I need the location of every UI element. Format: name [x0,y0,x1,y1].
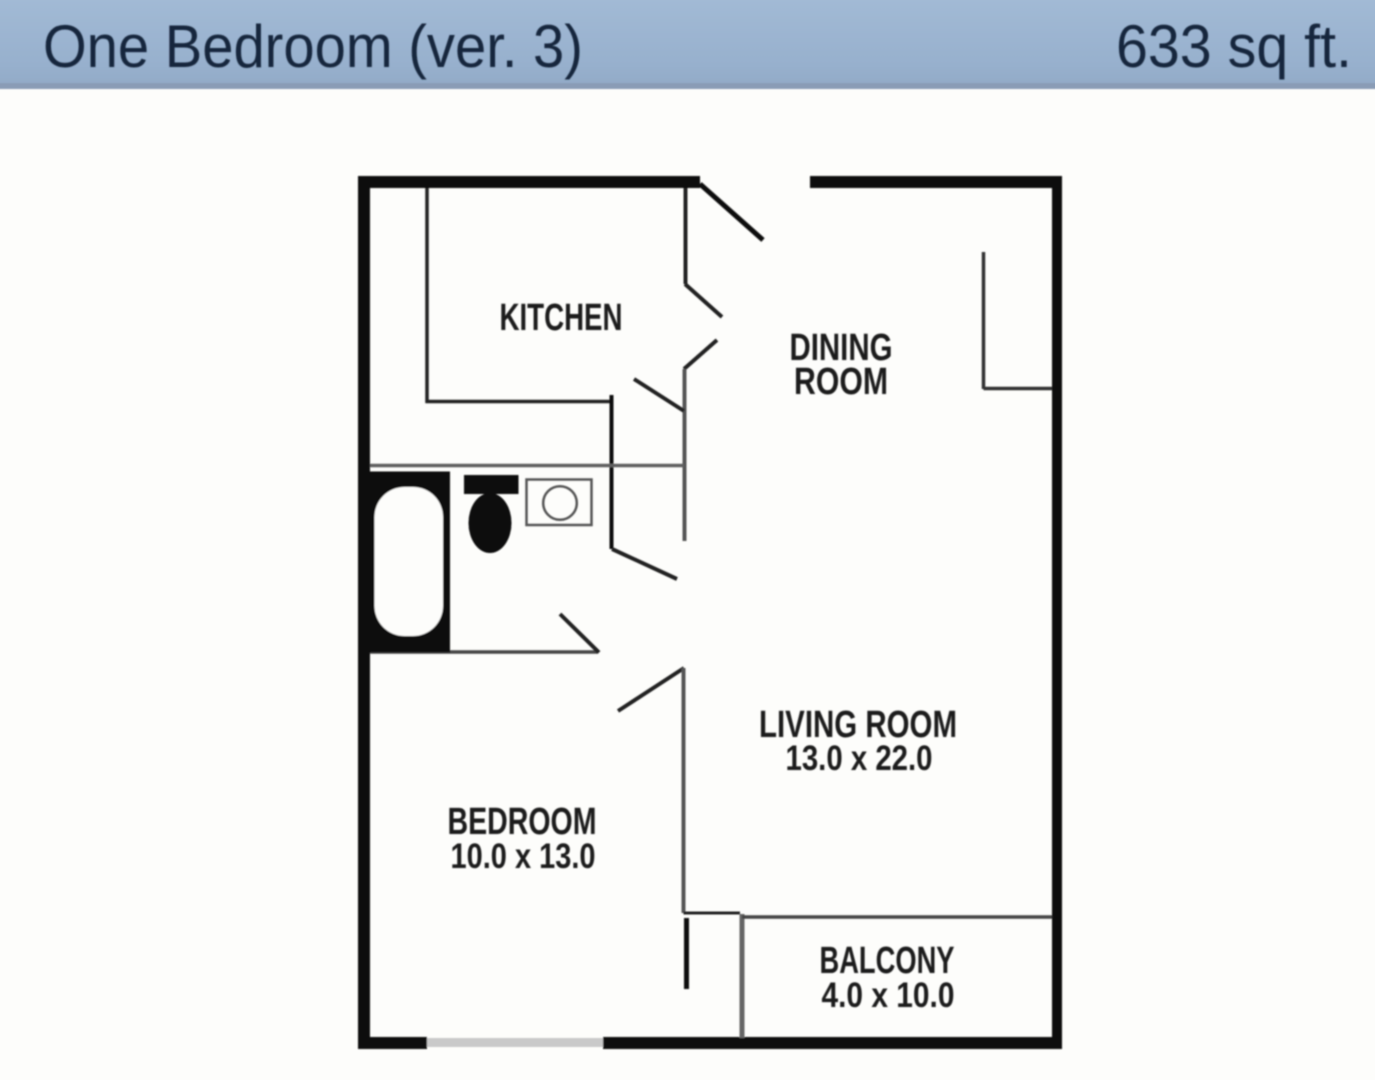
svg-text:13.0 x 22.0: 13.0 x 22.0 [786,739,933,778]
svg-text:10.0 x 13.0: 10.0 x 13.0 [451,837,596,876]
svg-text:633 sq ft.: 633 sq ft. [1116,13,1352,80]
svg-text:4.0 x 10.0: 4.0 x 10.0 [822,976,955,1015]
svg-text:One Bedroom (ver. 3): One Bedroom (ver. 3) [43,13,583,80]
svg-text:ROOM: ROOM [794,361,888,403]
svg-text:KITCHEN: KITCHEN [500,297,623,339]
